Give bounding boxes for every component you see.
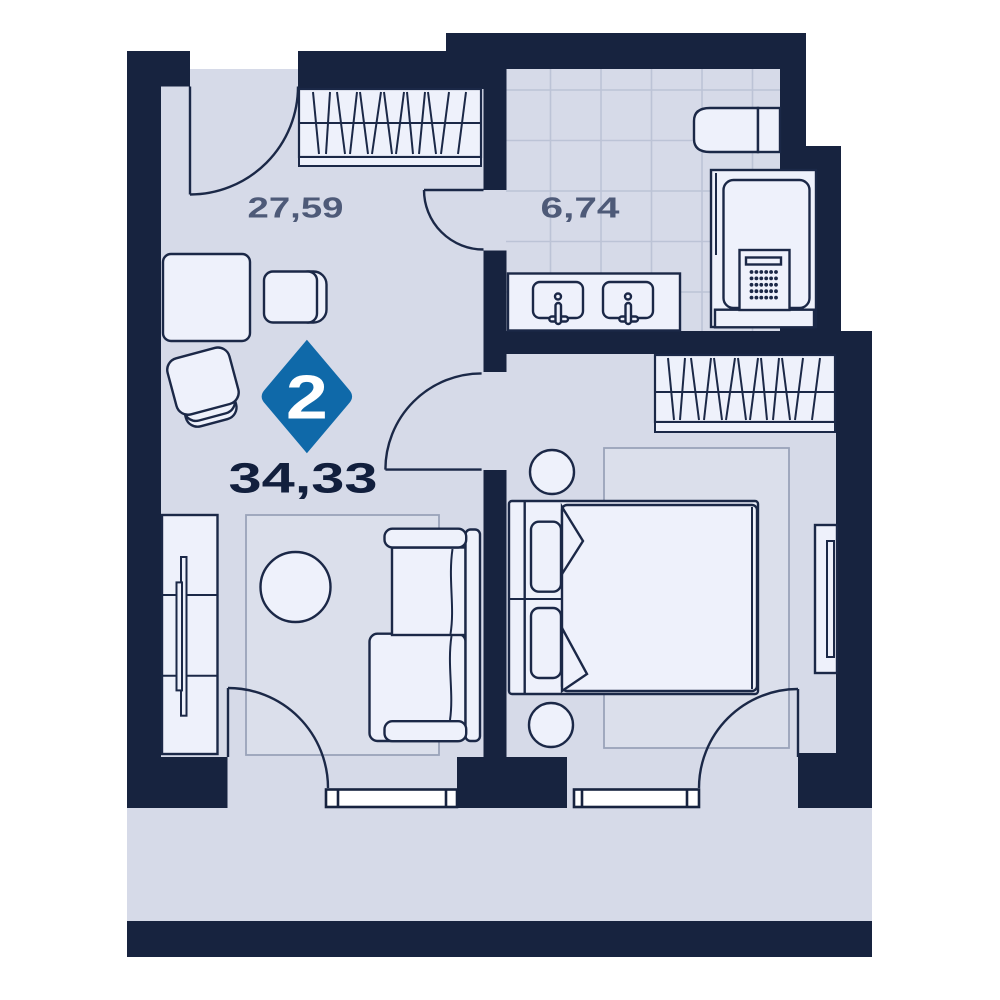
svg-text:6,74: 6,74	[541, 193, 620, 225]
svg-text:34,33: 34,33	[229, 455, 378, 503]
svg-text:27,59: 27,59	[248, 193, 344, 225]
svg-text:2: 2	[286, 364, 328, 433]
